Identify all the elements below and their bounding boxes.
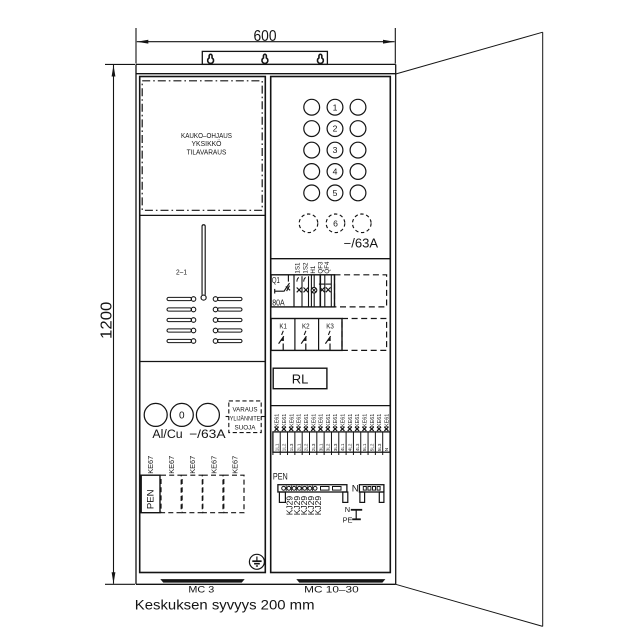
- svg-text:VARAUS: VARAUS: [233, 407, 258, 414]
- svg-text:0: 0: [179, 411, 185, 422]
- svg-text:4L3: 4L3: [355, 443, 360, 451]
- svg-text:QF4: QF4: [324, 261, 331, 274]
- svg-text:PE: PE: [343, 516, 353, 525]
- svg-text:KE61: KE61: [275, 414, 281, 427]
- svg-text:KJ29: KJ29: [314, 496, 323, 516]
- svg-text:KE61: KE61: [333, 414, 339, 427]
- svg-text:2L3: 2L3: [311, 443, 316, 451]
- svg-text:3: 3: [333, 145, 338, 155]
- svg-text:3L2: 3L2: [326, 443, 331, 451]
- svg-text:TILAVARAUS: TILAVARAUS: [187, 147, 227, 156]
- svg-text:N: N: [384, 448, 389, 451]
- svg-text:6: 6: [333, 219, 338, 229]
- svg-text:−/63A: −/63A: [189, 427, 226, 441]
- svg-text:4L2: 4L2: [348, 443, 353, 451]
- svg-text:N: N: [352, 484, 359, 495]
- svg-text:KE61: KE61: [311, 414, 317, 427]
- svg-text:KE61: KE61: [319, 414, 325, 427]
- svg-text:4L1: 4L1: [340, 443, 345, 451]
- svg-text:KE61: KE61: [377, 414, 383, 427]
- svg-text:1S1: 1S1: [295, 262, 302, 274]
- svg-text:4: 4: [333, 167, 338, 177]
- svg-text:KE61: KE61: [384, 414, 390, 427]
- svg-text:YLIJÄNNITE: YLIJÄNNITE: [230, 415, 261, 423]
- svg-text:K1: K1: [279, 321, 287, 330]
- svg-text:KE61: KE61: [341, 414, 347, 427]
- svg-text:KE67: KE67: [146, 456, 155, 474]
- svg-text:3L3: 3L3: [333, 443, 338, 451]
- svg-text:H1: H1: [310, 265, 317, 273]
- svg-text:5: 5: [333, 188, 338, 198]
- svg-text:KE61: KE61: [289, 414, 295, 427]
- svg-text:2–1: 2–1: [176, 267, 187, 276]
- svg-text:KE61: KE61: [348, 414, 354, 427]
- svg-text:−/63A: −/63A: [344, 237, 379, 251]
- svg-text:MC 3: MC 3: [188, 584, 214, 594]
- svg-text:1: 1: [333, 102, 338, 112]
- svg-text:KE61: KE61: [282, 414, 288, 427]
- svg-text:PEN: PEN: [146, 489, 157, 509]
- svg-text:SUOJA: SUOJA: [235, 425, 257, 432]
- svg-text:1200: 1200: [98, 302, 115, 339]
- svg-text:PEN: PEN: [273, 471, 288, 482]
- svg-text:KE61: KE61: [370, 414, 376, 427]
- svg-text:KE67: KE67: [167, 456, 176, 474]
- svg-text:80A: 80A: [272, 298, 285, 307]
- svg-text:1S2: 1S2: [302, 262, 309, 274]
- svg-text:1L2: 1L2: [282, 443, 287, 451]
- svg-text:KE61: KE61: [355, 414, 361, 427]
- svg-text:Al/Cu: Al/Cu: [152, 429, 182, 441]
- svg-text:KE67: KE67: [231, 456, 240, 474]
- svg-text:5L1: 5L1: [362, 443, 367, 451]
- svg-text:Q1: Q1: [272, 276, 280, 285]
- svg-text:MC 10–30: MC 10–30: [304, 584, 359, 595]
- svg-text:2L2: 2L2: [304, 443, 309, 451]
- svg-text:2: 2: [333, 124, 338, 134]
- svg-text:N: N: [345, 505, 350, 514]
- svg-text:K2: K2: [302, 321, 310, 330]
- svg-text:Keskuksen syvyys 200 mm: Keskuksen syvyys 200 mm: [135, 596, 315, 612]
- svg-text:600: 600: [254, 28, 277, 45]
- svg-text:K3: K3: [326, 321, 334, 330]
- svg-text:RL: RL: [292, 372, 309, 387]
- svg-text:5L2: 5L2: [370, 443, 375, 451]
- svg-text:KE67: KE67: [209, 456, 218, 474]
- svg-text:KE61: KE61: [326, 414, 332, 427]
- svg-text:KE67: KE67: [188, 456, 197, 474]
- svg-text:1L1: 1L1: [274, 443, 279, 451]
- svg-text:5L3: 5L3: [377, 443, 382, 451]
- svg-text:1L3: 1L3: [289, 443, 294, 451]
- svg-text:KE61: KE61: [297, 414, 303, 427]
- svg-text:3L1: 3L1: [318, 443, 323, 451]
- svg-text:KE61: KE61: [363, 414, 369, 427]
- svg-text:2L1: 2L1: [296, 443, 301, 451]
- svg-text:KE61: KE61: [304, 414, 310, 427]
